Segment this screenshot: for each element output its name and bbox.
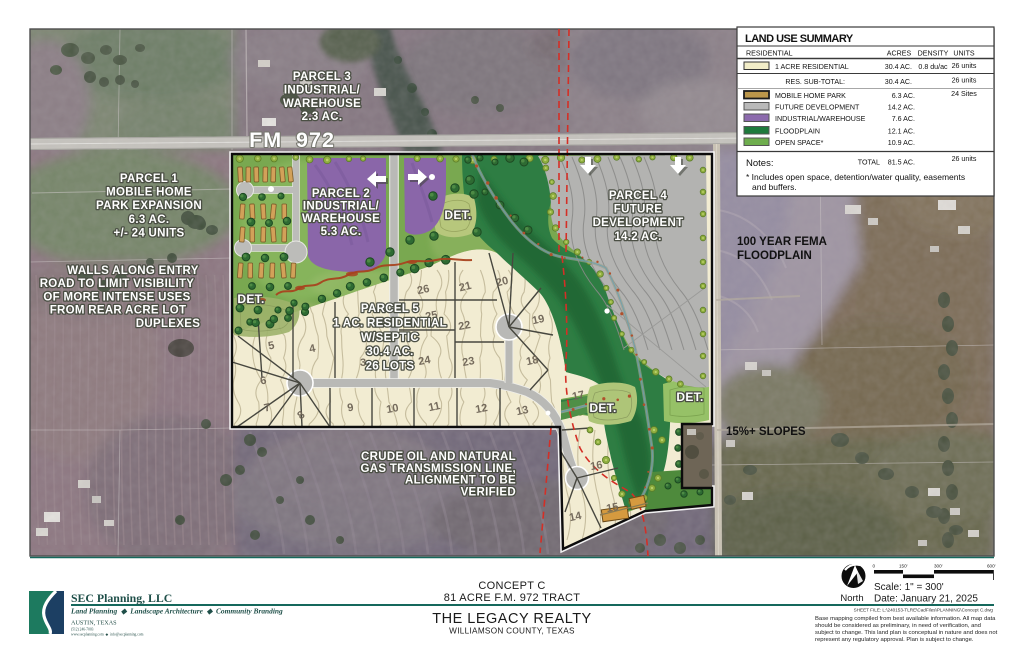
svg-text:1 ACRE RESIDENTIAL: 1 ACRE RESIDENTIAL [775,63,849,71]
svg-text:30.4 AC.: 30.4 AC. [366,346,413,358]
svg-text:PARCEL 2: PARCEL 2 [312,188,370,200]
svg-text:SHEET FILE: L:\240153-TLRE\Cad: SHEET FILE: L:\240153-TLRE\CadFiles\PLAN… [854,608,994,613]
svg-text:WAREHOUSE: WAREHOUSE [302,213,380,225]
svg-text:INDUSTRIAL/WAREHOUSE: INDUSTRIAL/WAREHOUSE [775,115,866,123]
svg-text:OF MORE INTENSE USES: OF MORE INTENSE USES [43,291,190,303]
svg-text:FLOODPLAIN: FLOODPLAIN [737,250,812,262]
svg-text:PARCEL 1: PARCEL 1 [120,173,179,185]
svg-text:OPEN SPACE*: OPEN SPACE* [775,139,824,147]
svg-text:DET.: DET. [589,401,616,415]
svg-text:14.2 AC.: 14.2 AC. [888,104,915,112]
svg-text:100 YEAR FEMA: 100 YEAR FEMA [737,236,827,248]
svg-text:16: 16 [589,459,603,473]
svg-text:24 Sites: 24 Sites [951,90,977,98]
svg-text:VERIFIED: VERIFIED [461,486,516,498]
svg-text:www.secplanning.com ◆ info@s: www.secplanning.com ◆ info@secplanning.c… [71,633,144,637]
svg-text:INDUSTRIAL/: INDUSTRIAL/ [303,201,380,213]
svg-text:ALIGNMENT TO BE: ALIGNMENT TO BE [405,475,516,487]
svg-text:Base mapping compiled from bes: Base mapping compiled from best availabl… [815,616,996,622]
svg-text:7.6 AC.: 7.6 AC. [892,115,915,123]
svg-text:INDUSTRIAL/: INDUSTRIAL/ [284,84,361,96]
svg-text:300': 300' [934,564,943,569]
svg-text:SEC Planning, LLC: SEC Planning, LLC [71,591,172,605]
svg-text:30.4 AC.: 30.4 AC. [885,78,912,86]
svg-text:26 units: 26 units [952,77,977,85]
svg-text:* Includes open space, detenti: * Includes open space, detention/water q… [746,172,965,182]
svg-text:TOTAL: TOTAL [858,159,880,167]
svg-text:18: 18 [525,354,539,368]
svg-text:FUTURE DEVELOPMENT: FUTURE DEVELOPMENT [775,104,860,112]
svg-text:WILLIAMSON COUNTY, TEXAS: WILLIAMSON COUNTY, TEXAS [449,627,575,636]
svg-text:CONCEPT C: CONCEPT C [478,580,545,592]
svg-text:0.8 du/ac: 0.8 du/ac [918,63,948,71]
svg-text:WALLS ALONG ENTRY: WALLS ALONG ENTRY [67,265,198,277]
svg-text:15: 15 [605,501,619,515]
svg-text:FUTURE: FUTURE [614,204,662,216]
svg-text:subject to change. This land: subject to change. This land plan is con… [815,630,998,636]
svg-text:FROM REAR ACRE LOT: FROM REAR ACRE LOT [50,305,187,317]
svg-text:CRUDE OIL AND NATURAL: CRUDE OIL AND NATURAL [361,451,516,463]
svg-text:RES. SUB-TOTAL:: RES. SUB-TOTAL: [785,78,845,86]
svg-text:15%+ SLOPES: 15%+ SLOPES [726,426,806,438]
svg-text:GAS TRANSMISSION LINE,: GAS TRANSMISSION LINE, [361,463,516,475]
svg-text:26 units: 26 units [952,155,977,163]
svg-text:W/SEPTIC: W/SEPTIC [361,332,419,344]
svg-text:RESIDENTIAL: RESIDENTIAL [746,50,793,58]
svg-text:26 units: 26 units [952,62,977,70]
svg-text:LAND USE SUMMARY: LAND USE SUMMARY [745,33,854,45]
svg-text:PARCEL 3: PARCEL 3 [293,71,351,83]
svg-text:WAREHOUSE: WAREHOUSE [283,98,361,110]
svg-text:DUPLEXES: DUPLEXES [136,318,200,330]
svg-text:12: 12 [474,402,488,416]
svg-text:13: 13 [515,404,529,418]
svg-text:Date: January 21, 2025: Date: January 21, 2025 [874,594,978,605]
svg-text:represent any regulatory appro: represent any regulatory approval. Plan … [815,637,974,643]
svg-text:11: 11 [427,400,441,414]
svg-text:22: 22 [457,319,471,333]
svg-text:Land Planning ◆ Landscape Ar: Land Planning ◆ Landscape Architecture ◆… [70,607,283,616]
svg-text:UNITS: UNITS [953,50,975,58]
svg-text:FLOODPLAIN: FLOODPLAIN [775,128,820,136]
svg-text:14.2 AC.: 14.2 AC. [614,231,661,243]
svg-text:19: 19 [531,313,545,327]
svg-text:6.3 AC.: 6.3 AC. [892,92,915,100]
svg-text:ACRES: ACRES [887,50,912,58]
svg-text:FM 972: FM 972 [249,128,335,152]
svg-text:30.4 AC.: 30.4 AC. [885,63,912,71]
svg-text:PARK EXPANSION: PARK EXPANSION [96,200,202,212]
svg-text:150': 150' [899,564,908,569]
svg-text:(512) 246-7003: (512) 246-7003 [71,628,94,632]
svg-text:26: 26 [416,283,430,297]
svg-text:10.9 AC.: 10.9 AC. [888,139,915,147]
svg-text:17: 17 [571,389,585,403]
svg-text:Scale: 1" = 300': Scale: 1" = 300' [874,582,944,593]
svg-text:ROAD TO LIMIT VISIBILITY: ROAD TO LIMIT VISIBILITY [40,278,195,290]
svg-text:DEVELOPMENT: DEVELOPMENT [593,217,684,229]
svg-text:DENSITY: DENSITY [918,50,949,58]
svg-text:23: 23 [461,355,475,369]
svg-text:6.3 AC.: 6.3 AC. [129,214,170,226]
svg-text:+/- 24 UNITS: +/- 24 UNITS [113,227,184,239]
svg-text:should be considered as prelim: should be considered as preliminary, in … [815,623,981,629]
svg-text:81 ACRE F.M. 972 TRACT: 81 ACRE F.M. 972 TRACT [444,592,581,604]
svg-text:600': 600' [987,564,996,569]
svg-text:Notes:: Notes: [746,158,773,169]
svg-text:12.1 AC.: 12.1 AC. [888,128,915,136]
svg-text:AUSTIN, TEXAS: AUSTIN, TEXAS [71,620,117,627]
svg-text:and buffers.: and buffers. [752,182,797,192]
svg-text:MOBILE HOME PARK: MOBILE HOME PARK [775,92,846,100]
svg-text:10: 10 [385,402,399,416]
svg-text:81.5 AC.: 81.5 AC. [888,159,915,167]
svg-text:26 LOTS: 26 LOTS [366,361,415,373]
svg-text:DET.: DET. [676,390,703,404]
svg-text:5.3 AC.: 5.3 AC. [321,226,362,238]
svg-text:DET.: DET. [237,292,264,306]
svg-text:2.3 AC.: 2.3 AC. [302,111,343,123]
svg-text:1 AC. RESIDENTIAL: 1 AC. RESIDENTIAL [333,317,447,329]
svg-text:North: North [840,593,863,604]
svg-text:MOBILE HOME: MOBILE HOME [106,187,192,199]
svg-text:DET.: DET. [444,208,471,222]
svg-text:0: 0 [873,564,876,569]
svg-text:PARCEL 4: PARCEL 4 [609,190,668,202]
svg-text:PARCEL 5: PARCEL 5 [361,303,420,315]
svg-text:THE LEGACY REALTY: THE LEGACY REALTY [432,611,591,627]
